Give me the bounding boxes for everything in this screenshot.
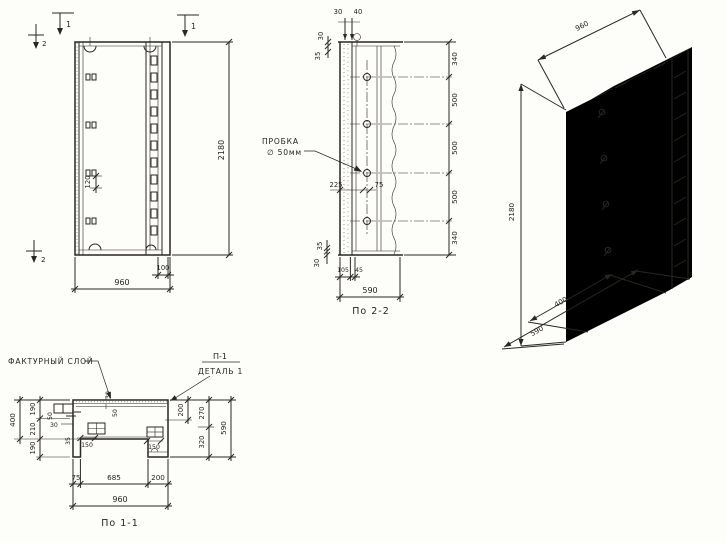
dim-210-label: 210 bbox=[29, 423, 37, 436]
dim-100-label: 100 bbox=[157, 264, 170, 272]
flag-2-top-label: 2 bbox=[42, 39, 47, 48]
dim-30-mid: 30 bbox=[50, 422, 58, 429]
axon-960-label: 960 bbox=[574, 18, 591, 32]
axonometric-view: 960 2180 400 590 bbox=[502, 10, 692, 349]
dim-590-label: 590 bbox=[362, 286, 377, 295]
dim-elevation-height: 2180 bbox=[172, 39, 233, 258]
section-flag-2-top: 2 bbox=[28, 24, 47, 49]
dim-105-label: 105 bbox=[337, 267, 349, 274]
left-joint-detail bbox=[54, 404, 81, 416]
embedded-plate-right bbox=[147, 427, 163, 437]
plug-holes bbox=[350, 60, 452, 235]
dim-35-bottom: 35 bbox=[316, 242, 324, 251]
flag-1-right-label: 1 bbox=[191, 22, 196, 31]
dim-200-label: 200 bbox=[177, 404, 185, 417]
dim-50-center: 50 bbox=[112, 409, 119, 417]
dim-190-a: 190 bbox=[29, 403, 37, 416]
dim-960-plan-label: 960 bbox=[112, 495, 127, 504]
detail-reference: П-1 ДЕТАЛЬ 1 bbox=[170, 352, 243, 401]
dim-225-label: 225 bbox=[330, 181, 343, 189]
dim-200-bottom-label: 200 bbox=[151, 473, 165, 482]
dim-left-upper: 30 35 bbox=[314, 32, 331, 61]
hook-loop bbox=[354, 34, 361, 41]
section-flag-1-right: 1 bbox=[177, 15, 199, 37]
dim-plug-spacing: 340 500 500 500 340 bbox=[404, 39, 459, 258]
dim-35-mid: 35 bbox=[65, 437, 72, 445]
dim-top-hook: 30 40 bbox=[334, 8, 363, 40]
dim-150-right: 150 bbox=[148, 444, 160, 451]
dim-left-lower: 35 30 bbox=[313, 240, 330, 267]
flag-1-left-label: 1 bbox=[66, 20, 71, 29]
section-2-2-caption: По 2-2 bbox=[352, 306, 390, 317]
dim-hook-spacing: 120 bbox=[84, 171, 102, 193]
dim-2180-label: 2180 bbox=[217, 140, 226, 160]
lifting-hook-left bbox=[84, 46, 96, 52]
blueprint-sheet: 120 2180 100 960 bbox=[0, 0, 726, 543]
dim-30-bottom: 30 bbox=[313, 259, 321, 268]
plug-note-line1: ПРОБКА bbox=[262, 137, 299, 146]
dim-plan-400: 400 bbox=[8, 396, 78, 444]
dim-plan-top-small: 50 30 50 bbox=[47, 391, 119, 420]
facing-layer-note: ФАКТУРНЫЙ СЛОЙ bbox=[8, 357, 111, 399]
dim-45-label: 45 bbox=[355, 267, 363, 274]
dim-75-label: 75 bbox=[375, 181, 384, 189]
dim-35-left: 35 bbox=[314, 52, 322, 61]
axon-2180-label: 2180 bbox=[507, 202, 516, 221]
section-1-1-caption: По 1-1 bbox=[101, 518, 139, 529]
dim-plug-offset: 225 75 bbox=[330, 181, 384, 193]
plug-note: ПРОБКА ∅ 50мм bbox=[262, 137, 362, 172]
dim-960-label: 960 bbox=[114, 278, 129, 287]
section-1-1-view: ФАКТУРНЫЙ СЛОЙ П-1 ДЕТАЛЬ 1 400 bbox=[8, 352, 243, 529]
section-flag-1-left: 1 bbox=[52, 13, 74, 35]
dim-30-top: 30 bbox=[334, 8, 343, 16]
dim-340-bottom: 340 bbox=[450, 231, 459, 245]
dim-plan-bottom: 75 685 200 960 bbox=[69, 459, 172, 510]
bottom-recess-left bbox=[89, 244, 101, 250]
axon-590-label: 590 bbox=[529, 323, 546, 338]
dim-190-b: 190 bbox=[29, 442, 37, 455]
elevation-view: 120 2180 100 960 bbox=[26, 13, 233, 293]
dim-channel-width: 100 bbox=[152, 257, 174, 279]
facing-layer-label: ФАКТУРНЫЙ СЛОЙ bbox=[8, 357, 93, 366]
dim-400-label: 400 bbox=[8, 413, 17, 427]
section-flag-2-bottom: 2 bbox=[26, 240, 46, 264]
edge-brackets bbox=[86, 74, 96, 224]
dim-section22-bottom: 105 45 590 bbox=[335, 257, 404, 302]
section-2-2-view: ПРОБКА ∅ 50мм 340 500 500 500 340 bbox=[262, 8, 459, 317]
panel-drawing: 120 2180 100 960 bbox=[0, 0, 726, 543]
dim-500-b: 500 bbox=[450, 141, 459, 155]
dim-40-top: 40 bbox=[354, 8, 363, 16]
dim-685-label: 685 bbox=[107, 473, 121, 482]
dim-320-label: 320 bbox=[198, 436, 206, 449]
dim-590-plan-label: 590 bbox=[219, 421, 228, 435]
dim-340-top: 340 bbox=[450, 52, 459, 66]
dim-50-left: 50 bbox=[47, 412, 54, 420]
dim-120-label: 120 bbox=[84, 176, 92, 189]
dim-150-left: 150 bbox=[81, 442, 93, 449]
dim-270-label: 270 bbox=[198, 407, 206, 420]
embedded-plate-left bbox=[88, 423, 105, 434]
flange-front-face bbox=[566, 106, 578, 342]
dim-30-left: 30 bbox=[317, 32, 325, 41]
dim-75-label: 75 bbox=[72, 474, 81, 482]
detail-ref-p1: П-1 bbox=[213, 352, 227, 361]
dim-plan-right: 200 270 320 590 bbox=[165, 396, 236, 461]
dim-500-c: 500 bbox=[450, 190, 459, 204]
flag-2-bottom-label: 2 bbox=[41, 255, 46, 264]
plug-note-line2: ∅ 50мм bbox=[267, 148, 302, 157]
dim-500-a: 500 bbox=[450, 93, 459, 107]
detail-ref-detail1: ДЕТАЛЬ 1 bbox=[198, 367, 243, 376]
bottom-recess-right bbox=[146, 245, 156, 250]
keyway-ladder bbox=[151, 56, 157, 235]
